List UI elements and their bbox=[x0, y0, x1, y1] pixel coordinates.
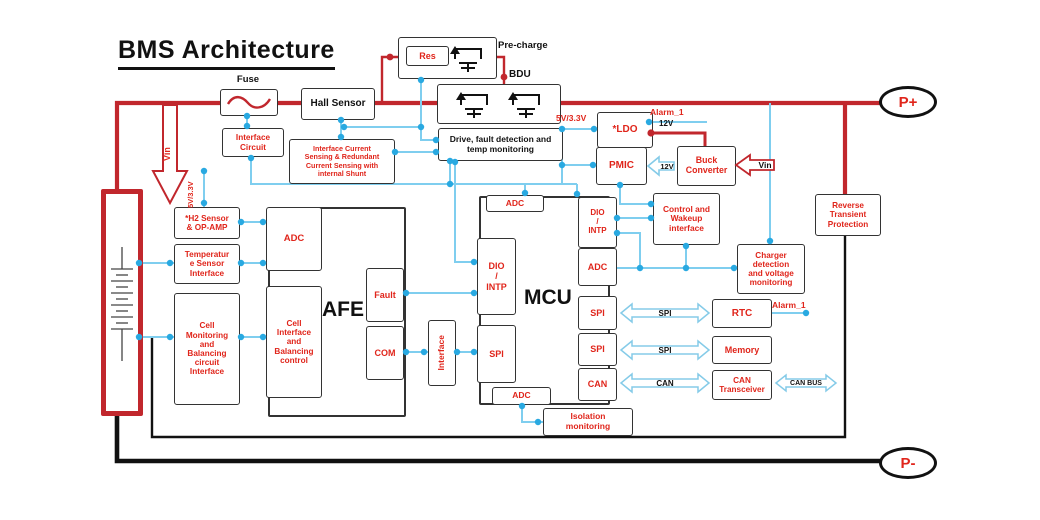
twelve-v-line-label: 12V bbox=[659, 119, 673, 128]
vin-input-arrow: Vin bbox=[151, 103, 189, 205]
precharge-res-box: Res bbox=[406, 46, 449, 66]
control-wakeup-box: Control and Wakeup interface bbox=[653, 193, 720, 245]
vin-right-label: Vin bbox=[734, 151, 786, 179]
spi2-label: SPI bbox=[619, 339, 711, 361]
can-label: CAN bbox=[619, 372, 711, 394]
mcu-label: MCU bbox=[524, 286, 572, 310]
vin-left-label: Vin bbox=[162, 117, 178, 161]
can-bus-arrow: CAN bbox=[619, 372, 711, 394]
interface-bridge-box: Interface bbox=[428, 320, 456, 386]
mcu-adc-right-port: ADC bbox=[578, 248, 617, 286]
drive-fault-box: Drive, fault detection and temp monitori… bbox=[438, 128, 563, 161]
rtc-box: RTC bbox=[712, 299, 772, 328]
mosfet-icon bbox=[504, 85, 548, 126]
pmic-box: PMIC bbox=[596, 147, 647, 185]
alarm1-rtc-label: Alarm_1 bbox=[772, 300, 806, 310]
five-v-right-label: 5V/3.3V bbox=[556, 113, 586, 123]
battery-pack bbox=[101, 189, 143, 416]
mcu-adc-top-port: ADC bbox=[486, 195, 544, 212]
interface-bridge-label: Interface bbox=[437, 335, 447, 370]
buck-converter-box: Buck Converter bbox=[677, 146, 736, 186]
memory-box: Memory bbox=[712, 336, 772, 364]
afe-label: AFE bbox=[322, 298, 364, 322]
mosfet-icon bbox=[452, 85, 496, 126]
mcu-spi-right1-port: SPI bbox=[578, 296, 617, 330]
twelve-v-arrow-label: 12V bbox=[646, 153, 682, 179]
current-sensing-box: Interface Current Sensing & Redundant Cu… bbox=[289, 139, 395, 184]
cell-monitoring-box: Cell Monitoring and Balancing circuit In… bbox=[174, 293, 240, 405]
bms-architecture-diagram: AFE MCU Fuse Hall Sensor Interface Circu… bbox=[0, 0, 1040, 520]
can-transceiver-box: CAN Transceiver bbox=[712, 370, 772, 400]
spi-bus-arrow-1: SPI bbox=[619, 302, 711, 324]
precharge-label: Pre-charge bbox=[498, 40, 548, 51]
afe-adc-port: ADC bbox=[266, 207, 322, 271]
p-minus-label: P- bbox=[901, 455, 916, 472]
temp-sensor-box: Temperatur e Sensor Interface bbox=[174, 244, 240, 284]
fuse-icon bbox=[223, 92, 275, 114]
negative-bus-line bbox=[117, 406, 880, 461]
mcu-can-right-port: CAN bbox=[578, 368, 617, 401]
charger-detection-box: Charger detection and voltage monitoring bbox=[737, 244, 805, 294]
h2-sensor-box: *H2 Sensor & OP-AMP bbox=[174, 207, 240, 239]
isolation-monitoring-box: Isolation monitoring bbox=[543, 408, 633, 436]
mcu-spi-left-port: SPI bbox=[477, 325, 516, 383]
p-plus-terminal: P+ bbox=[879, 86, 937, 118]
fuse-box bbox=[220, 89, 278, 116]
battery-icon bbox=[111, 199, 133, 406]
can-bus-external-arrow: CAN BUS bbox=[774, 372, 838, 394]
mcu-dio-left-port: DIO / INTP bbox=[477, 238, 516, 315]
hall-sensor-box: Hall Sensor bbox=[301, 88, 375, 120]
afe-com-port: COM bbox=[366, 326, 404, 380]
spi1-label: SPI bbox=[619, 302, 711, 324]
ldo-box: *LDO bbox=[597, 112, 653, 148]
fuse-label: Fuse bbox=[222, 74, 274, 85]
ldo-12v-line bbox=[651, 133, 705, 147]
p-plus-label: P+ bbox=[899, 94, 918, 111]
vin-buck-arrow: Vin bbox=[734, 151, 776, 179]
precharge-branch-line bbox=[382, 57, 398, 103]
can-bus-label: CAN BUS bbox=[774, 372, 838, 394]
alarm1-top-label: Alarm_1 bbox=[650, 107, 684, 117]
interface-circuit-box: Interface Circuit bbox=[222, 128, 284, 157]
mosfet-icon bbox=[446, 39, 490, 80]
page-title: BMS Architecture bbox=[118, 36, 335, 70]
mcu-spi-right2-port: SPI bbox=[578, 333, 617, 366]
reverse-transient-box: Reverse Transient Protection bbox=[815, 194, 881, 236]
afe-cell-interface-port: Cell Interface and Balancing control bbox=[266, 286, 322, 398]
buck-pmic-arrow: 12V bbox=[646, 153, 676, 179]
p-minus-terminal: P- bbox=[879, 447, 937, 479]
afe-fault-port: Fault bbox=[366, 268, 404, 322]
mcu-dio-right-port: DIO / INTP bbox=[578, 197, 617, 248]
spi-bus-arrow-2: SPI bbox=[619, 339, 711, 361]
mcu-adc-bottom-port: ADC bbox=[492, 387, 551, 405]
bdu-label: BDU bbox=[509, 69, 531, 80]
